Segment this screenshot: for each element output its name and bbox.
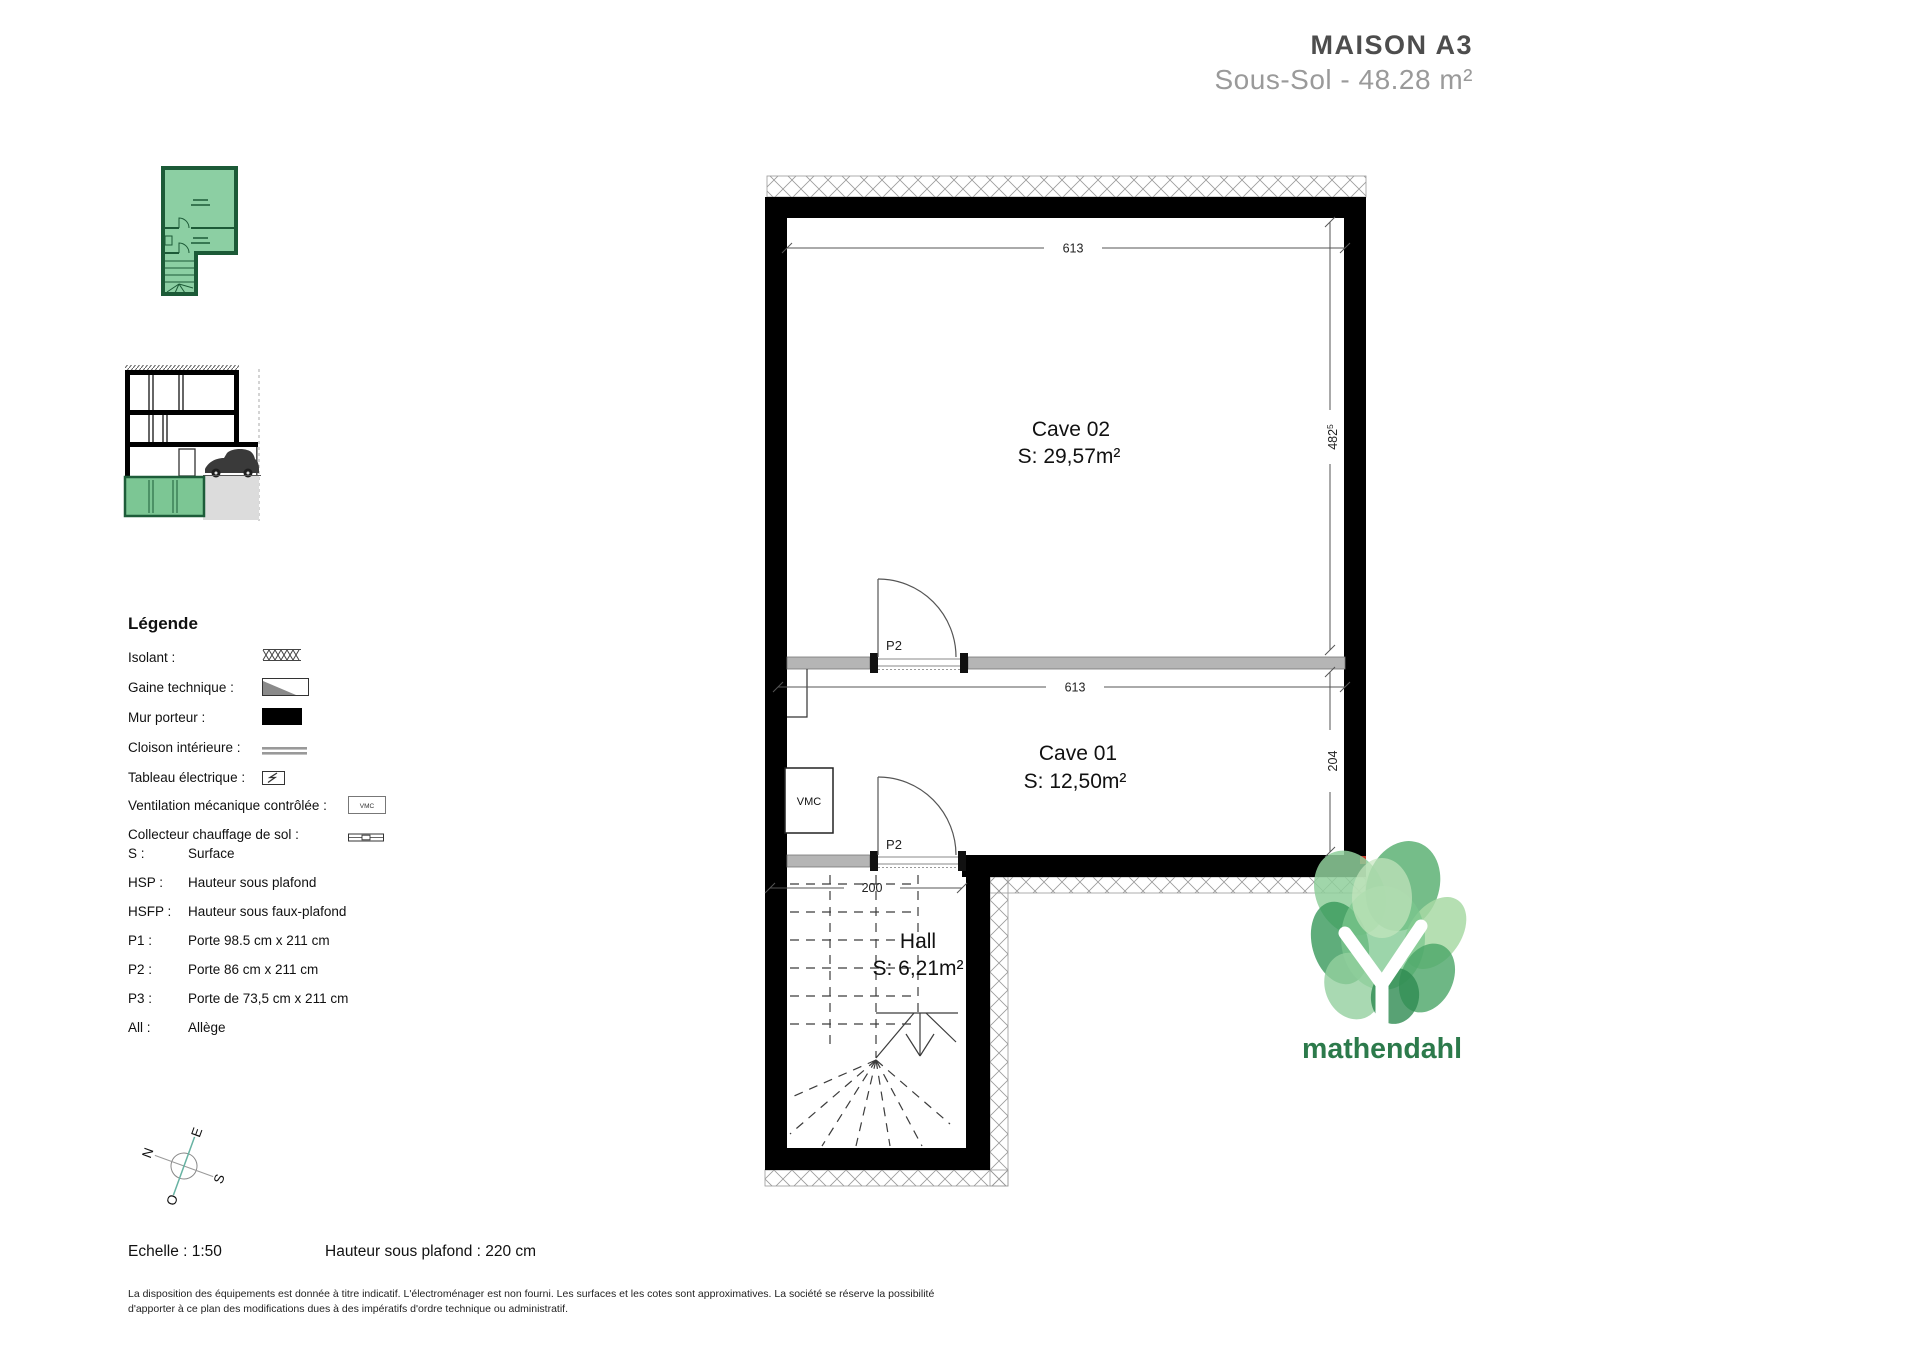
legend: Légende Isolant : Gaine technique : xyxy=(128,614,458,634)
svg-text:613: 613 xyxy=(1065,681,1086,695)
insulation-symbol xyxy=(262,648,302,665)
room-label-hall: Hall xyxy=(900,930,936,953)
company-logo: mathendahl xyxy=(1295,838,1470,1068)
dimension-right-lower: 204 xyxy=(1325,667,1340,857)
building-section-drawing xyxy=(121,363,263,525)
door-label-top: P2 xyxy=(886,638,902,653)
car-silhouette xyxy=(205,449,259,478)
svg-text:200: 200 xyxy=(862,881,883,895)
section-basement-highlight xyxy=(125,477,204,516)
legend-abbr-p3: P3 : Porte de 73,5 cm x 211 cm xyxy=(128,991,152,1006)
section-ground-fill xyxy=(203,476,259,520)
electrical-panel-symbol xyxy=(262,771,285,788)
legend-abbr-all: All : Allège xyxy=(128,1020,151,1035)
compass-north: N xyxy=(139,1146,156,1160)
dimension-right-upper: 4825 xyxy=(1325,217,1340,655)
vmc-symbol: VMC xyxy=(348,796,386,817)
compass-east: E xyxy=(188,1126,205,1140)
dimension-hall-width: 200 xyxy=(765,881,967,895)
svg-text:613: 613 xyxy=(1063,242,1084,256)
svg-text:VMC: VMC xyxy=(360,803,375,810)
legend-abbr-s: S : Surface xyxy=(128,846,145,861)
compass-west: O xyxy=(163,1192,181,1207)
section-roof-insulation xyxy=(125,365,239,370)
legend-row-isolant: Isolant : xyxy=(128,650,175,672)
legend-abbr-p1: P1 : Porte 98.5 cm x 211 cm xyxy=(128,933,152,948)
legend-row-tableau: Tableau électrique : xyxy=(128,770,245,792)
stairs xyxy=(790,875,958,1146)
logo-wordmark: mathendahl xyxy=(1302,1033,1462,1065)
room-surface-cave02: S: 29,57m² xyxy=(1018,445,1121,468)
disclaimer: La disposition des équipements est donné… xyxy=(128,1287,934,1317)
legend-row-cloison: Cloison intérieure : xyxy=(128,740,241,762)
legend-abbr-p2: P2 : Porte 86 cm x 211 cm xyxy=(128,962,152,977)
interior-partition-symbol xyxy=(262,744,307,759)
svg-text:4825: 4825 xyxy=(1325,424,1340,450)
room-surface-cave01: S: 12,50m² xyxy=(1024,770,1127,793)
mini-plan-thumbnail xyxy=(161,166,239,296)
room-label-cave02: Cave 02 xyxy=(1032,418,1110,441)
legend-abbr-hsp: HSP : Hauteur sous plafond xyxy=(128,875,163,890)
page-title: MAISON A3 xyxy=(1215,30,1474,61)
legend-row-vmc: Ventilation mécanique contrôlée : VMC xyxy=(128,798,327,820)
dimension-mid-width: 613 xyxy=(773,681,1350,695)
compass-south: S xyxy=(211,1172,228,1186)
legend-abbr-hsfp: HSFP : Hauteur sous faux-plafond xyxy=(128,904,171,919)
door-jambs xyxy=(870,653,968,871)
ceiling-height-text: Hauteur sous plafond : 220 cm xyxy=(325,1243,536,1261)
legend-row-mur: Mur porteur : xyxy=(128,710,205,732)
title-block: MAISON A3 Sous-Sol - 48.28 m² xyxy=(1215,30,1474,96)
wall-recess xyxy=(787,669,807,717)
legend-row-gaine: Gaine technique : xyxy=(128,680,234,702)
floorplan-page: MAISON A3 Sous-Sol - 48.28 m² xyxy=(0,0,1920,1357)
floor-plan: VMC xyxy=(600,140,1450,1240)
section-windows xyxy=(149,375,183,442)
section-entry-door xyxy=(179,449,195,476)
room-surface-hall: S: 6,21m² xyxy=(872,957,963,980)
technical-duct-symbol xyxy=(262,678,309,699)
svg-text:204: 204 xyxy=(1326,751,1340,772)
scale-text: Echelle : 1:50 xyxy=(128,1243,222,1261)
compass-rose: N E S O xyxy=(139,1121,229,1211)
vmc-label: VMC xyxy=(797,796,822,808)
room-label-cave01: Cave 01 xyxy=(1039,742,1117,765)
disclaimer-line1: La disposition des équipements est donné… xyxy=(128,1287,934,1302)
legend-heading: Légende xyxy=(128,614,458,634)
door-label-bottom: P2 xyxy=(886,837,902,852)
page-subtitle: Sous-Sol - 48.28 m² xyxy=(1215,64,1474,96)
disclaimer-line2: d'apporter à ce plan des modifications d… xyxy=(128,1302,934,1317)
load-bearing-wall-symbol xyxy=(262,708,302,728)
floor-heating-collector-symbol xyxy=(348,831,384,846)
dimension-top-width: 613 xyxy=(782,242,1350,256)
